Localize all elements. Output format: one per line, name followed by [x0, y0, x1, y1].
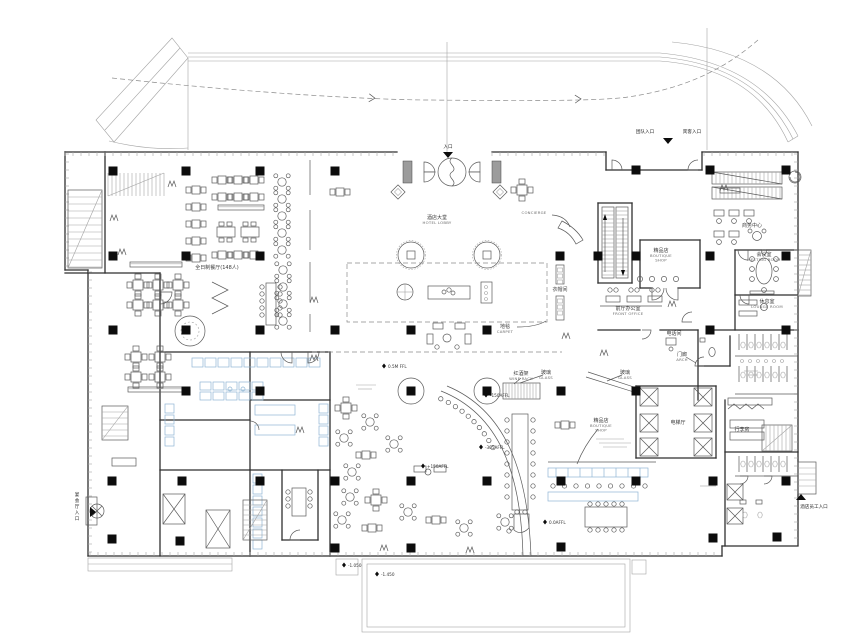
structural-column — [256, 252, 265, 261]
entrance-label-main-entrance: 入口 — [443, 144, 453, 150]
structural-column — [109, 167, 118, 176]
structural-column — [782, 477, 791, 486]
structural-column — [256, 326, 265, 335]
structural-column — [773, 533, 782, 542]
structural-column — [331, 477, 340, 486]
entrance-label-staff-entrance: 酒店员工入口 — [800, 503, 828, 510]
pool-terrace-layer — [88, 558, 646, 632]
room-label-luggage-room: 行李房 — [734, 426, 749, 433]
structural-column — [594, 252, 603, 261]
room-label-en-porch: ARCH — [676, 357, 688, 362]
entrance-label-group-entrance: 团队入口 — [636, 128, 655, 135]
structural-column — [632, 166, 641, 175]
hotel-ground-floor-plan-drawing: 酒店大堂HOTEL LOBBY全日制餐厅(148人)CONCIERGE地毯CAR… — [0, 0, 850, 642]
room-label-business-centre: 商务中心 — [742, 222, 762, 229]
structural-column — [256, 167, 265, 176]
room-label-en-wine-rack: WINE RACK — [509, 376, 533, 381]
room-label-telephone-room: 电话间 — [666, 330, 681, 337]
elevation-mark-0: 0.5M FFL — [388, 364, 407, 369]
room-label-en-hotel-lobby: HOTEL LOBBY — [423, 220, 452, 225]
structural-column — [483, 477, 492, 486]
structural-column — [407, 387, 416, 396]
elevation-mark-1: -150AFFL — [490, 393, 510, 398]
structural-column — [182, 167, 191, 176]
room-label-en-lounge-room: LOUNGE ROOM — [751, 304, 783, 309]
entrance-label-guest-entrance: 宾客入口 — [683, 128, 702, 135]
room-label-en-front-office: FRONT OFFICE — [613, 311, 644, 316]
structural-column — [557, 387, 566, 396]
walls-layer — [65, 152, 798, 556]
room-label-cloak-room: 衣帽间 — [552, 286, 567, 293]
structural-column — [706, 252, 715, 261]
entrance-label-banquet-entrance: 宴会厅入口 — [75, 491, 80, 522]
room-label-en-meeting-room: MEETING ROOM — [747, 257, 780, 262]
structural-column — [782, 326, 791, 335]
room-label-en-carpet: CARPET — [497, 329, 514, 334]
structural-column — [176, 537, 185, 546]
structural-column — [331, 167, 340, 176]
structural-column — [632, 387, 641, 396]
structural-column — [483, 326, 492, 335]
structural-column — [407, 326, 416, 335]
structural-column — [407, 477, 416, 486]
structural-column — [256, 387, 265, 396]
elevation-mark-2: -305AFFL — [485, 445, 505, 450]
structural-column — [182, 252, 191, 261]
elevation-mark-5: -1.450 — [381, 572, 395, 577]
room-label-en-glass-screen-west: GLASS — [539, 375, 553, 380]
structural-column — [331, 544, 340, 553]
structural-column — [108, 477, 117, 486]
structural-column — [706, 166, 715, 175]
structural-column — [709, 534, 718, 543]
structural-column — [706, 326, 715, 335]
structural-column — [557, 543, 566, 552]
structural-column — [782, 166, 791, 175]
structural-column — [182, 326, 191, 335]
elevation-mark-6: -1.050 — [348, 563, 362, 568]
elevation-mark-3: +150AFFL — [427, 464, 449, 469]
zone-dashed-layer — [112, 40, 758, 352]
elevation-mark-4: 0.0AFFL — [549, 520, 566, 525]
structural-column — [108, 535, 117, 544]
structural-column — [407, 544, 416, 553]
structural-column — [109, 252, 118, 261]
structural-column — [709, 477, 718, 486]
structural-column — [632, 252, 641, 261]
structural-column — [557, 477, 566, 486]
structural-column — [331, 326, 340, 335]
structural-column — [178, 477, 187, 486]
room-label-all-day-dining: 全日制餐厅(148人) — [195, 264, 238, 271]
vertical-circulation-layer — [68, 172, 811, 548]
room-label-en-bakery-boutique: BOUTIQUESHOP — [590, 423, 612, 433]
structural-column — [109, 326, 118, 335]
floor-plan-page: 酒店大堂HOTEL LOBBY全日制餐厅(148人)CONCIERGE地毯CAR… — [0, 0, 850, 642]
room-label-lift-lobby: 电梯厅 — [670, 419, 685, 426]
structural-column — [256, 477, 265, 486]
structural-column — [182, 387, 191, 396]
structural-column — [556, 252, 565, 261]
structural-column — [782, 252, 791, 261]
structural-column — [632, 477, 641, 486]
room-label-en-glass-screen-east: GLASS — [618, 375, 632, 380]
room-label-en-boutique-shop: BOUTIQUESHOP — [650, 253, 672, 263]
window-mullions-layer — [65, 152, 798, 556]
canopy-layer — [96, 28, 812, 152]
decor-layer — [108, 158, 801, 553]
room-label-en-concierge: CONCIERGE — [522, 210, 547, 215]
